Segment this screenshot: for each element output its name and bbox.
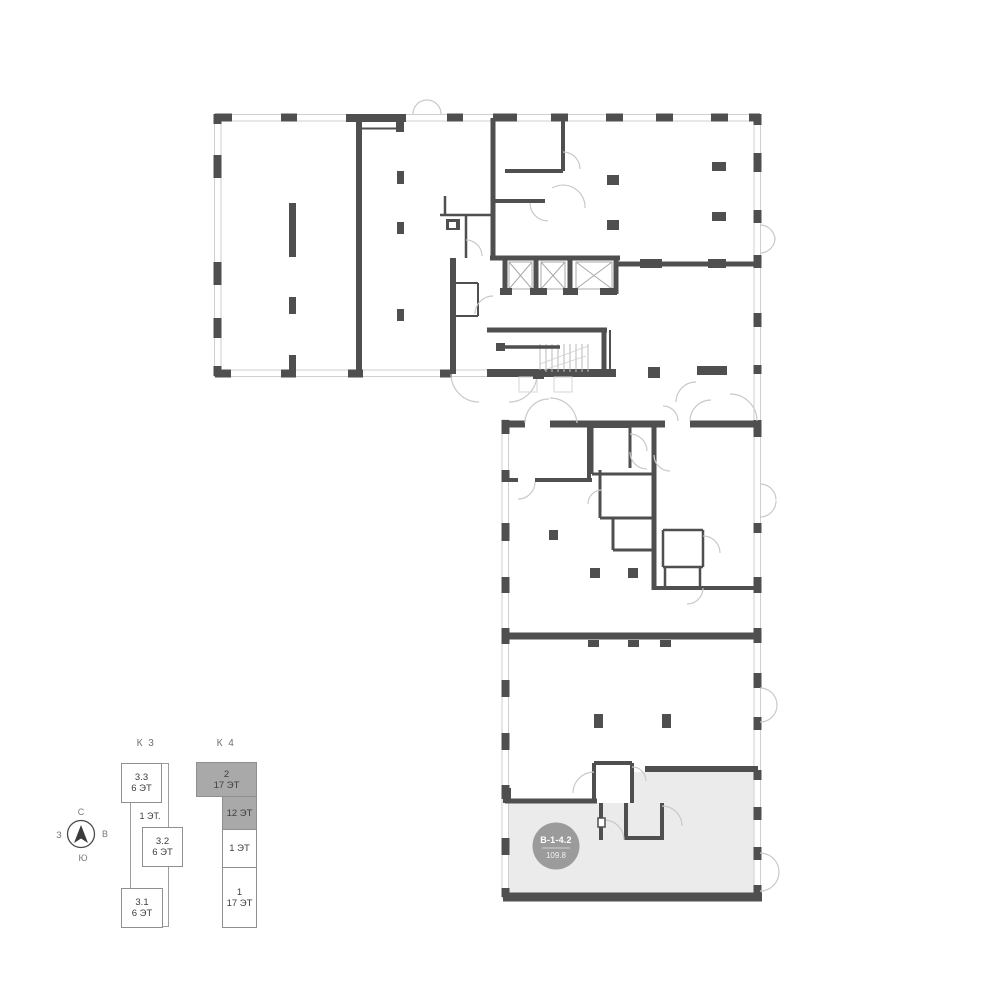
section-3-3[interactable]: 3.3 6 ЭТ: [121, 763, 162, 803]
compass: С Ю З В: [50, 800, 114, 868]
unit-inner-room: [596, 765, 630, 802]
section-1[interactable]: 1 17 ЭТ: [222, 867, 257, 928]
unit-area: 109.8: [546, 851, 567, 860]
elevator-shafts: [509, 262, 612, 289]
section-2-floors: 17 ЭТ: [214, 780, 240, 791]
section-3-2[interactable]: 3.2 6 ЭТ: [142, 827, 183, 867]
section-1et[interactable]: 1 ЭТ: [222, 829, 257, 868]
door-hinge-detail: [598, 818, 605, 827]
porch-outlines: [519, 377, 572, 392]
fixture-detail: [449, 222, 456, 228]
unit-badge-circle[interactable]: [533, 823, 580, 870]
building-k4-title: К 4: [186, 738, 266, 749]
compass-south: Ю: [78, 853, 87, 863]
section-3-2-floors: 6 ЭТ: [152, 847, 173, 858]
section-3-2-label: 3.2: [156, 836, 169, 847]
section-3-3-floors: 6 ЭТ: [131, 783, 152, 794]
section-12et-selected[interactable]: 12 ЭТ: [222, 796, 257, 830]
section-1et-label: 1 ЭТ: [229, 843, 250, 854]
stairs: [496, 343, 588, 372]
section-12et-label: 12 ЭТ: [227, 808, 253, 819]
section-3-3-label: 3.3: [135, 772, 148, 783]
building-k3-title: К 3: [106, 738, 186, 749]
k3-floor-label: 1 ЭТ.: [130, 811, 170, 821]
north-arrow-icon: [74, 825, 88, 843]
compass-west: З: [56, 830, 61, 840]
section-2-label: 2: [224, 769, 229, 780]
unit-code: В-1-4.2: [540, 835, 571, 845]
section-1-floors: 17 ЭТ: [227, 898, 253, 909]
section-1-label: 1: [237, 887, 242, 898]
section-3-1-label: 3.1: [135, 897, 148, 908]
compass-north: С: [78, 807, 85, 817]
section-3-1-floors: 6 ЭТ: [132, 908, 153, 919]
unit-badge[interactable]: В-1-4.2 109.8: [533, 823, 580, 870]
section-2-selected[interactable]: 2 17 ЭТ: [196, 762, 257, 797]
section-3-1[interactable]: 3.1 6 ЭТ: [121, 888, 163, 928]
compass-east: В: [102, 829, 108, 839]
